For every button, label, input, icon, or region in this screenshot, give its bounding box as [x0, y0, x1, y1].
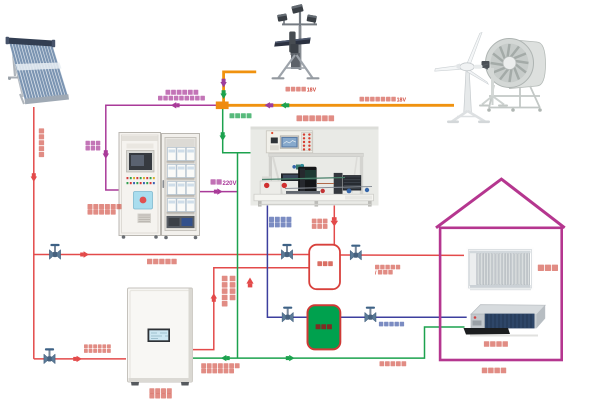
svg-text:18V: 18V [397, 98, 407, 104]
svg-text:220V: 220V [223, 181, 237, 187]
svg-text:18V: 18V [307, 88, 317, 94]
